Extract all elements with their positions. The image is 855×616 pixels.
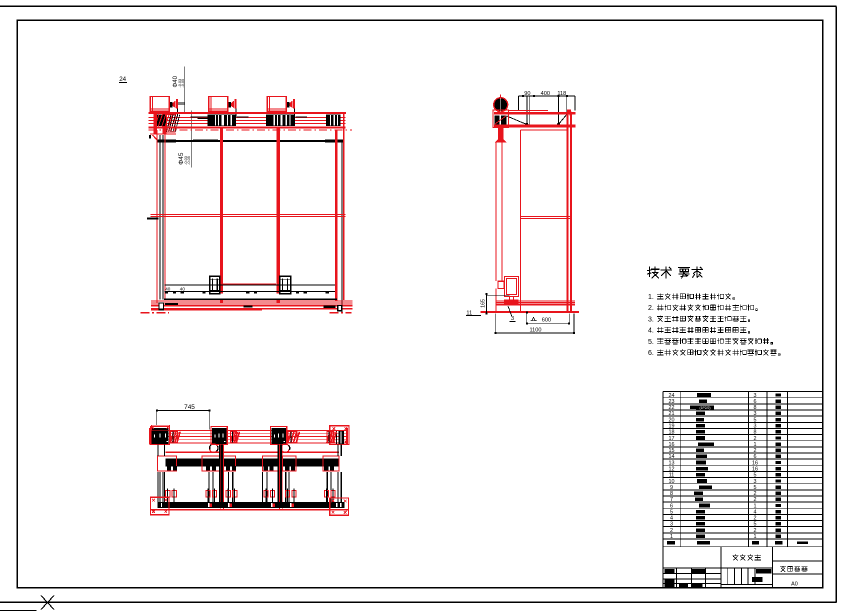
svg-text:40: 40 <box>165 286 171 291</box>
svg-text:5: 5 <box>754 522 757 528</box>
svg-text:3: 3 <box>754 479 757 485</box>
svg-text:165: 165 <box>481 299 487 308</box>
svg-text:3: 3 <box>754 424 757 430</box>
svg-text:3: 3 <box>670 522 673 528</box>
svg-text:6: 6 <box>754 454 757 460</box>
svg-text:1: 1 <box>754 503 757 509</box>
svg-text:A0: A0 <box>791 581 798 587</box>
svg-text:9: 9 <box>670 485 673 491</box>
svg-text:2: 2 <box>670 528 673 534</box>
svg-text:24: 24 <box>669 393 675 399</box>
svg-text:2: 2 <box>754 436 757 442</box>
svg-text:5: 5 <box>754 485 757 491</box>
svg-text:3.: 3. <box>648 316 654 323</box>
svg-text:11: 11 <box>669 473 675 479</box>
svg-text:10: 10 <box>669 479 675 485</box>
svg-text:17: 17 <box>669 436 675 442</box>
svg-text:-0.05: -0.05 <box>187 156 191 165</box>
svg-text:5: 5 <box>754 417 757 423</box>
svg-text:8: 8 <box>754 405 757 411</box>
svg-text:5: 5 <box>754 473 757 479</box>
svg-text:24: 24 <box>119 76 126 83</box>
svg-text:2: 2 <box>754 497 757 503</box>
svg-text:7: 7 <box>670 497 673 503</box>
svg-text:2: 2 <box>754 528 757 534</box>
svg-text:16: 16 <box>752 460 758 466</box>
svg-text:8: 8 <box>670 491 673 497</box>
svg-text:-0.05: -0.05 <box>181 79 185 88</box>
svg-text:6.: 6. <box>648 350 654 357</box>
svg-text:23: 23 <box>669 399 675 405</box>
svg-text:1.: 1. <box>648 294 654 301</box>
svg-text:16: 16 <box>752 466 758 472</box>
svg-text:20: 20 <box>669 417 675 423</box>
svg-text:4: 4 <box>670 516 673 522</box>
svg-text:15: 15 <box>669 448 675 454</box>
svg-text:5: 5 <box>670 509 673 515</box>
svg-text:400: 400 <box>541 91 550 97</box>
svg-text:118: 118 <box>557 91 566 97</box>
svg-text:21: 21 <box>669 411 675 417</box>
svg-text:600: 600 <box>542 317 551 323</box>
svg-text:16: 16 <box>669 442 675 448</box>
svg-text:2: 2 <box>754 491 757 497</box>
svg-text:19: 19 <box>669 424 675 430</box>
svg-text:13: 13 <box>669 460 675 466</box>
svg-text:1: 1 <box>670 534 673 540</box>
svg-text:3: 3 <box>754 393 757 399</box>
svg-text:12: 12 <box>669 466 675 472</box>
svg-text:5.: 5. <box>648 339 654 346</box>
svg-text:18: 18 <box>669 430 675 436</box>
svg-text:1: 1 <box>754 534 757 540</box>
svg-text:4: 4 <box>754 509 757 515</box>
svg-text:2.: 2. <box>648 305 654 312</box>
svg-text:2: 2 <box>754 516 757 522</box>
svg-text:2: 2 <box>754 448 757 454</box>
svg-text:22: 22 <box>669 405 675 411</box>
svg-text:1: 1 <box>754 442 757 448</box>
svg-text:8: 8 <box>754 430 757 436</box>
svg-text:6: 6 <box>754 399 757 405</box>
svg-text:(1P2/2): (1P2/2) <box>699 406 710 410</box>
svg-text:3: 3 <box>754 411 757 417</box>
svg-text:14: 14 <box>669 454 675 460</box>
svg-text:40: 40 <box>180 286 186 291</box>
svg-text:6: 6 <box>670 503 673 509</box>
svg-text:90: 90 <box>524 91 530 97</box>
svg-text:4.: 4. <box>648 328 654 335</box>
